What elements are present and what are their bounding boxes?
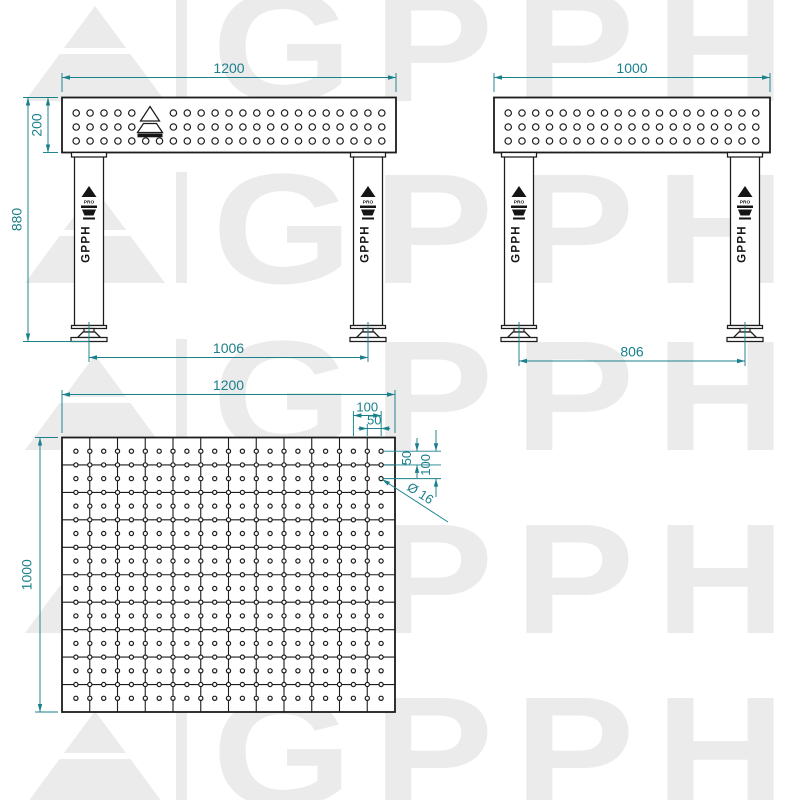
leg-brand-label: GPPH bbox=[737, 225, 749, 263]
dimension-label: 1200 bbox=[213, 377, 244, 393]
side-view: PROGPPHPROGPPH bbox=[494, 98, 770, 342]
table-leg: PROGPPH bbox=[501, 153, 537, 342]
dimension-label: 1000 bbox=[19, 559, 35, 590]
dimension-label: 1006 bbox=[213, 340, 244, 356]
dimension-label: 1000 bbox=[616, 60, 647, 76]
leg-brand-label: GPPH bbox=[360, 225, 372, 263]
dimension-label: 50 bbox=[367, 413, 381, 428]
technical-drawing: PROGPPHPROGPPH12002008801006PROGPPHPROGP… bbox=[0, 0, 800, 800]
dimension-label: 100 bbox=[418, 454, 433, 476]
leg-brand-label: GPPH bbox=[81, 225, 93, 263]
dimension-label: 880 bbox=[9, 208, 25, 232]
leg-brand-label: GPPH bbox=[511, 225, 523, 263]
dimension-label: 50 bbox=[399, 451, 414, 465]
leg-series-label: PRO bbox=[84, 200, 95, 206]
dimension-label: 200 bbox=[29, 113, 45, 137]
front-view: PROGPPHPROGPPH bbox=[62, 98, 396, 342]
drawing-canvas: GPPHGPPHGPPHGPPHGPPH PROGPPHPROGPPH12002… bbox=[0, 0, 800, 800]
table-leg: PROGPPH bbox=[71, 153, 107, 342]
top-view bbox=[62, 438, 395, 713]
leg-series-label: PRO bbox=[514, 200, 525, 206]
table-leg: PROGPPH bbox=[727, 153, 763, 342]
dimension-label: Ø 16 bbox=[405, 479, 437, 507]
dimension-label: 1200 bbox=[213, 60, 244, 76]
table-leg: PROGPPH bbox=[350, 153, 386, 342]
leg-series-label: PRO bbox=[363, 200, 374, 206]
leg-series-label: PRO bbox=[740, 200, 751, 206]
dimension-label: 806 bbox=[620, 344, 644, 360]
